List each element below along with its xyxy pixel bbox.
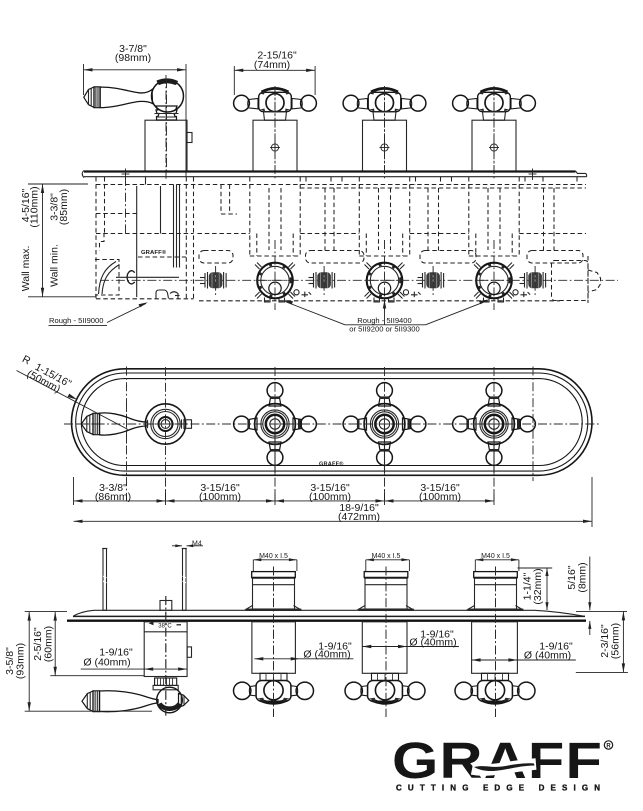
- svg-text:(8mm): (8mm): [577, 562, 589, 592]
- svg-text:Ø (40mm): Ø (40mm): [83, 657, 130, 669]
- svg-text:Ø (40mm): Ø (40mm): [409, 637, 456, 649]
- svg-text:(98mm): (98mm): [115, 52, 151, 64]
- svg-text:M40 x I.5: M40 x I.5: [259, 553, 288, 560]
- svg-text:(472mm): (472mm): [338, 511, 380, 523]
- svg-text:(32mm): (32mm): [532, 568, 544, 604]
- svg-text:(93mm): (93mm): [15, 643, 27, 679]
- svg-text:GRAFF®: GRAFF®: [141, 249, 167, 256]
- svg-text:Rough - 5II9000: Rough - 5II9000: [49, 316, 103, 325]
- svg-text:R: R: [606, 744, 611, 750]
- svg-text:Ø (40mm): Ø (40mm): [524, 650, 571, 662]
- svg-text:GRAFF: GRAFF: [392, 732, 603, 789]
- svg-text:(100mm): (100mm): [419, 491, 461, 503]
- svg-text:(110mm): (110mm): [29, 186, 41, 227]
- svg-text:(86mm): (86mm): [95, 491, 131, 503]
- svg-text:(85mm): (85mm): [58, 189, 70, 225]
- svg-text:(100mm): (100mm): [309, 491, 351, 503]
- svg-text:GRAFF®: GRAFF®: [319, 461, 344, 468]
- svg-text:Ø (40mm): Ø (40mm): [303, 649, 350, 661]
- svg-text:(74mm): (74mm): [254, 59, 290, 71]
- svg-text:(56mm): (56mm): [610, 623, 622, 659]
- svg-text:or 5II9200 or 5II9300: or 5II9200 or 5II9300: [349, 325, 420, 334]
- svg-text:(60mm): (60mm): [43, 626, 55, 662]
- svg-text:(100mm): (100mm): [199, 491, 241, 503]
- svg-text:M4: M4: [192, 541, 202, 548]
